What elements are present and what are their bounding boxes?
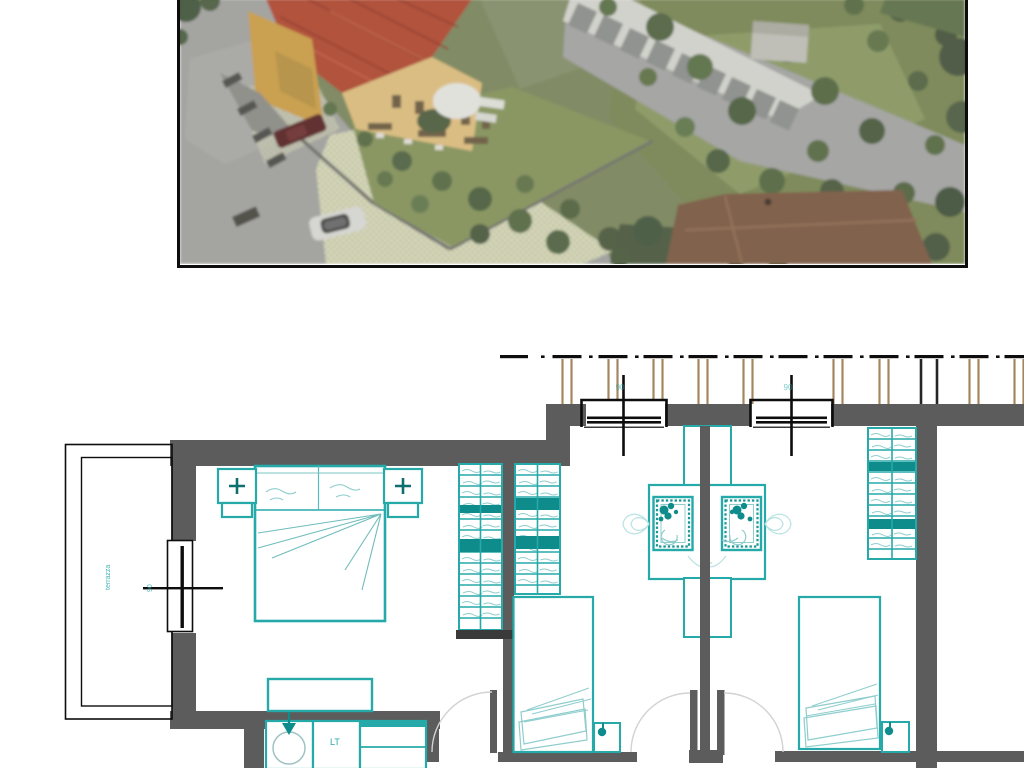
svg-text:90: 90 <box>784 383 793 392</box>
svg-text:90: 90 <box>147 584 154 592</box>
svg-text:90: 90 <box>616 383 625 392</box>
svg-text:LT: LT <box>330 737 340 747</box>
svg-text:terrazza: terrazza <box>105 565 112 590</box>
